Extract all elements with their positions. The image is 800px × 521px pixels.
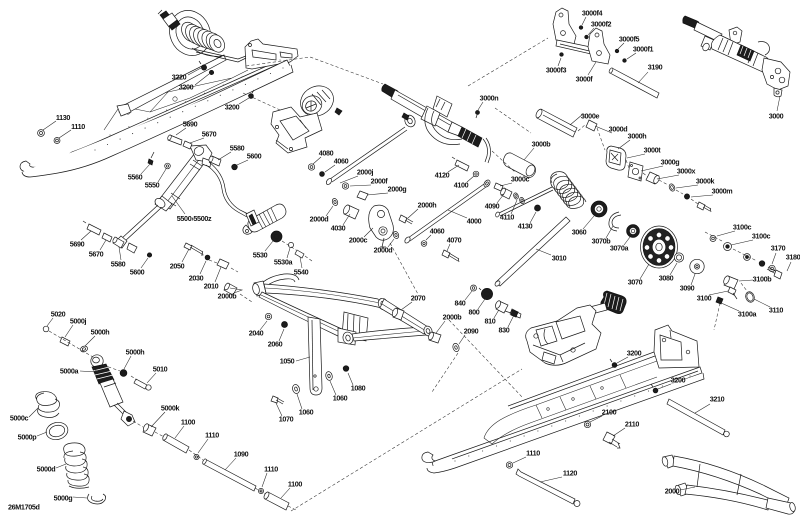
- svg-text:5690: 5690: [183, 120, 198, 129]
- svg-text:4100: 4100: [454, 181, 469, 190]
- svg-text:5000g: 5000g: [54, 494, 73, 503]
- svg-text:5560: 5560: [128, 173, 143, 182]
- svg-text:3000n: 3000n: [480, 94, 499, 103]
- svg-text:5600: 5600: [247, 152, 262, 161]
- svg-text:4060: 4060: [334, 157, 349, 166]
- svg-text:3200: 3200: [225, 103, 240, 112]
- svg-text:3000m: 3000m: [712, 187, 733, 196]
- svg-text:3000f2: 3000f2: [591, 20, 612, 29]
- svg-text:1090: 1090: [234, 450, 249, 459]
- svg-text:4110: 4110: [500, 213, 515, 222]
- svg-text:3010: 3010: [552, 254, 567, 263]
- svg-text:3080: 3080: [659, 274, 674, 283]
- svg-text:840: 840: [455, 299, 466, 308]
- svg-text:5600: 5600: [130, 268, 145, 277]
- svg-text:4060: 4060: [430, 227, 445, 236]
- svg-text:5000d: 5000d: [37, 465, 56, 474]
- svg-text:2030: 2030: [189, 274, 204, 283]
- svg-text:2000f: 2000f: [371, 177, 389, 186]
- svg-text:5670: 5670: [202, 130, 217, 139]
- svg-text:3090: 3090: [680, 284, 695, 293]
- svg-text:1130: 1130: [56, 113, 71, 122]
- svg-text:3190: 3190: [648, 63, 663, 72]
- svg-text:2000g: 2000g: [388, 185, 407, 194]
- svg-text:5530a: 5530a: [274, 258, 294, 267]
- svg-text:1100: 1100: [181, 418, 196, 427]
- svg-text:1110: 1110: [526, 449, 540, 458]
- svg-text:3000h: 3000h: [628, 132, 647, 141]
- svg-text:3200: 3200: [627, 349, 642, 358]
- svg-text:2000d: 2000d: [310, 215, 329, 224]
- svg-text:3210: 3210: [710, 395, 725, 404]
- svg-text:2010: 2010: [204, 282, 219, 291]
- svg-text:5000k: 5000k: [161, 404, 180, 413]
- svg-text:1050: 1050: [280, 357, 295, 366]
- svg-text:5550: 5550: [145, 181, 160, 190]
- svg-text:26M1705d: 26M1705d: [8, 503, 40, 512]
- svg-text:5670: 5670: [89, 250, 104, 259]
- svg-text:1060: 1060: [299, 408, 314, 417]
- svg-text:4070: 4070: [447, 236, 462, 245]
- svg-text:3100c: 3100c: [752, 232, 771, 241]
- svg-text:2100: 2100: [602, 408, 617, 417]
- svg-text:3000b: 3000b: [532, 140, 552, 149]
- svg-text:2070: 2070: [411, 294, 426, 303]
- svg-text:2000h: 2000h: [418, 201, 437, 210]
- svg-text:3000g: 3000g: [661, 158, 680, 167]
- svg-text:3000x: 3000x: [677, 167, 696, 176]
- svg-text:2000d: 2000d: [374, 246, 393, 255]
- svg-text:5000h: 5000h: [91, 328, 110, 337]
- svg-text:3000f1: 3000f1: [633, 45, 654, 54]
- svg-text:1070: 1070: [279, 415, 294, 424]
- svg-text:5000a: 5000a: [60, 367, 80, 376]
- svg-text:3100a: 3100a: [738, 310, 758, 319]
- svg-text:5010: 5010: [153, 365, 168, 374]
- svg-text:2000: 2000: [665, 487, 680, 496]
- svg-text:3000f5: 3000f5: [619, 35, 640, 44]
- svg-text:3170: 3170: [771, 244, 786, 253]
- svg-text:3000t: 3000t: [644, 146, 662, 155]
- svg-text:3000k: 3000k: [696, 177, 715, 186]
- svg-text:3000d: 3000d: [609, 125, 628, 134]
- svg-text:3000f3: 3000f3: [546, 66, 567, 75]
- svg-text:1110: 1110: [205, 431, 219, 440]
- svg-text:1120: 1120: [563, 469, 578, 478]
- svg-text:3100b: 3100b: [753, 275, 773, 284]
- svg-text:4130: 4130: [518, 222, 533, 231]
- svg-text:1100: 1100: [288, 480, 303, 489]
- svg-text:3100c: 3100c: [733, 223, 752, 232]
- svg-text:5020: 5020: [51, 310, 66, 319]
- svg-text:2060: 2060: [268, 340, 283, 349]
- svg-text:3200: 3200: [179, 83, 194, 92]
- svg-text:2000c: 2000c: [349, 236, 368, 245]
- svg-text:4080: 4080: [319, 149, 334, 158]
- svg-text:5690: 5690: [70, 240, 85, 249]
- svg-text:2050: 2050: [170, 262, 185, 271]
- svg-text:4120: 4120: [435, 171, 450, 180]
- svg-text:5000h: 5000h: [126, 348, 145, 357]
- svg-text:3110: 3110: [769, 306, 784, 315]
- svg-text:5540: 5540: [294, 268, 309, 277]
- svg-text:2110: 2110: [625, 420, 640, 429]
- svg-text:5000p: 5000p: [18, 433, 38, 442]
- svg-text:4000: 4000: [467, 217, 482, 226]
- svg-text:5580: 5580: [111, 260, 126, 269]
- svg-text:3070a: 3070a: [610, 244, 630, 253]
- svg-text:5530: 5530: [253, 251, 268, 260]
- svg-text:5000c: 5000c: [10, 414, 29, 423]
- svg-text:3180: 3180: [786, 253, 800, 262]
- svg-text:2000b: 2000b: [443, 313, 463, 322]
- svg-text:1110: 1110: [264, 465, 278, 474]
- svg-text:3000e: 3000e: [581, 112, 600, 121]
- svg-text:1060: 1060: [333, 394, 348, 403]
- svg-text:3000f: 3000f: [576, 75, 594, 84]
- svg-text:5580: 5580: [230, 144, 245, 153]
- svg-text:3070b: 3070b: [592, 237, 612, 246]
- svg-text:2090: 2090: [464, 327, 479, 336]
- svg-text:2040: 2040: [249, 329, 264, 338]
- svg-text:2000j: 2000j: [357, 168, 374, 177]
- svg-text:3200: 3200: [671, 376, 686, 385]
- svg-text:3060: 3060: [572, 228, 587, 237]
- svg-text:3000f4: 3000f4: [582, 9, 603, 18]
- svg-text:5000j: 5000j: [70, 317, 87, 326]
- svg-text:3000: 3000: [769, 112, 784, 121]
- svg-text:1110: 1110: [71, 122, 85, 131]
- svg-text:3220: 3220: [172, 73, 187, 82]
- svg-text:5500›5500z: 5500›5500z: [177, 214, 212, 223]
